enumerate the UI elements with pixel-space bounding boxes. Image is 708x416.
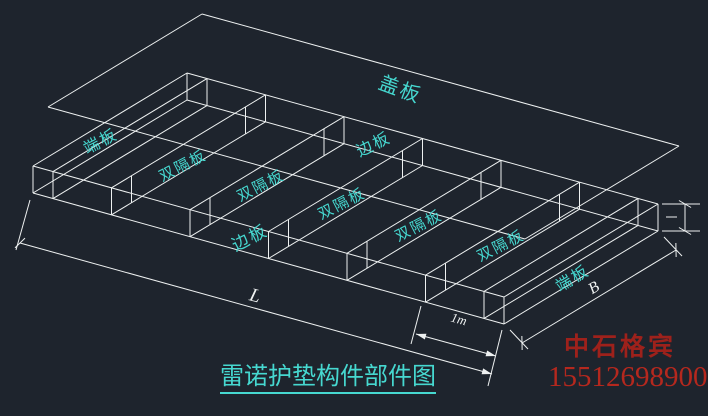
panel-label: 双隔板 [315, 184, 369, 223]
cad-viewport: LB1m盖板端板双隔板双隔板双隔板双隔板双隔板边板边板端板 雷诺护垫构件部件图 … [0, 0, 708, 416]
phone-number: 15512698900 [548, 361, 708, 394]
panel-label: 双隔板 [392, 206, 446, 245]
panel-label: 双隔板 [234, 166, 288, 205]
panel-label: 双隔板 [156, 146, 210, 185]
drawing-title: 雷诺护垫构件部件图 [220, 364, 436, 394]
panel-label: 盖板 [376, 71, 425, 108]
company-name: 中石格宾 [564, 327, 676, 363]
dimension-cell-1m: 1m [411, 306, 496, 356]
panel-labels: 盖板端板双隔板双隔板双隔板双隔板双隔板边板边板端板 [81, 71, 593, 295]
dim-label: L [246, 284, 263, 307]
dim-label: 1m [449, 310, 468, 329]
panel-label: 端板 [553, 262, 593, 296]
dimension-height [662, 201, 700, 235]
panel-label: 端板 [81, 125, 121, 157]
dim-label: B [585, 278, 602, 298]
